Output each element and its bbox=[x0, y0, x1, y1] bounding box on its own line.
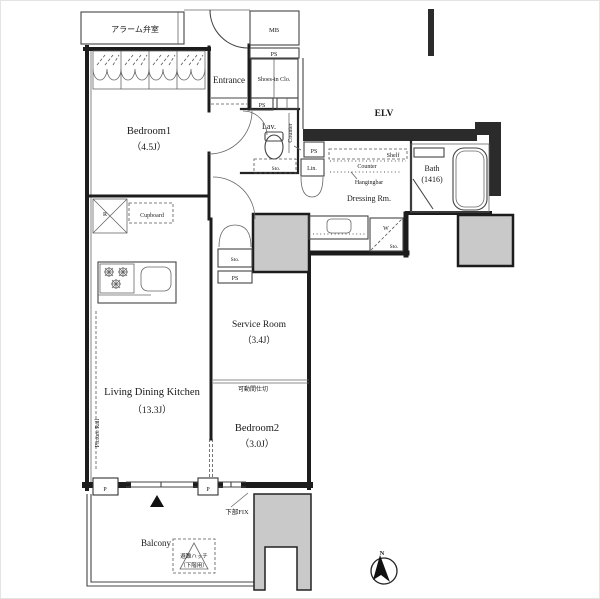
label-sto-service: Sto. bbox=[231, 257, 240, 263]
label-service-room: Service Room bbox=[232, 320, 287, 330]
label-bedroom2-size: （3.0J） bbox=[240, 438, 275, 450]
label-picture-rail: Picture Rail bbox=[95, 418, 101, 447]
label-sto-washer: Sto. bbox=[390, 244, 399, 250]
label-bedroom1: Bedroom1 bbox=[127, 126, 171, 137]
label-shoes-closet: Shoes-in Clo. bbox=[258, 77, 291, 83]
label-linen: Lin. bbox=[307, 166, 317, 172]
entrance-area bbox=[210, 10, 248, 104]
stove-burners-icon bbox=[104, 267, 128, 289]
label-service-room-size: （3.4J） bbox=[243, 335, 276, 345]
label-sto-lav: Sto. bbox=[272, 166, 281, 172]
label-ps-entrance: PS bbox=[259, 103, 266, 109]
bedroom1-closet bbox=[93, 51, 205, 89]
label-compass-north: N bbox=[380, 550, 385, 557]
label-lavatory: Lav. bbox=[262, 122, 276, 131]
label-elv: ELV bbox=[375, 109, 394, 119]
label-counter-dressing: Counter bbox=[357, 164, 376, 170]
label-hangingbar: Hangingbar bbox=[355, 180, 383, 186]
label-counter-lav: Counter bbox=[288, 123, 294, 142]
label-washer: W bbox=[383, 226, 389, 232]
label-cupboard: Cupboard bbox=[140, 213, 164, 219]
label-shelf: Shelf bbox=[387, 152, 400, 159]
label-ps-service: PS bbox=[232, 276, 239, 282]
balcony-outline bbox=[87, 494, 311, 590]
door-arcs bbox=[209, 111, 255, 219]
label-escape-hatch-1: 避難ハッチ bbox=[180, 552, 208, 560]
kitchen-counter bbox=[98, 262, 176, 303]
label-bedroom2: Bedroom2 bbox=[235, 423, 279, 434]
meter-box bbox=[250, 11, 299, 58]
label-bath: Bath bbox=[424, 164, 439, 173]
label-ps-hall: PS bbox=[311, 149, 318, 155]
compass-icon bbox=[371, 555, 397, 584]
label-balcony: Balcony bbox=[141, 538, 171, 548]
label-ps-top: PS bbox=[271, 52, 278, 58]
label-refrigerator: R bbox=[103, 212, 107, 218]
label-bedroom1-size: （4.5J） bbox=[132, 141, 167, 153]
label-lower-fix: 下部FIX bbox=[225, 507, 249, 516]
label-escape-hatch-2: （下階用） bbox=[180, 561, 208, 569]
label-bath-size: (1416) bbox=[421, 175, 443, 184]
south-windows bbox=[93, 478, 248, 507]
label-dressing-room: Dressing Rm. bbox=[347, 194, 391, 203]
label-ldk: Living Dining Kitchen bbox=[104, 387, 200, 398]
floor-plan: アラーム弁室 MB PS Entrance Shoes-in Clo. PS E… bbox=[1, 1, 600, 599]
label-movable-partition: 可動間仕切 bbox=[238, 385, 268, 393]
pillars bbox=[253, 214, 513, 272]
label-entrance: Entrance bbox=[213, 75, 245, 85]
balcony-marker-triangle bbox=[150, 495, 164, 507]
label-ldk-size: （13.3J） bbox=[132, 404, 171, 416]
label-alarm-room: アラーム弁室 bbox=[111, 24, 159, 34]
alarm-room-outline bbox=[81, 10, 250, 44]
elv-hall-walls bbox=[303, 9, 501, 196]
label-mb: MB bbox=[269, 27, 280, 34]
floor-plan-page: アラーム弁室 MB PS Entrance Shoes-in Clo. PS E… bbox=[0, 0, 600, 599]
